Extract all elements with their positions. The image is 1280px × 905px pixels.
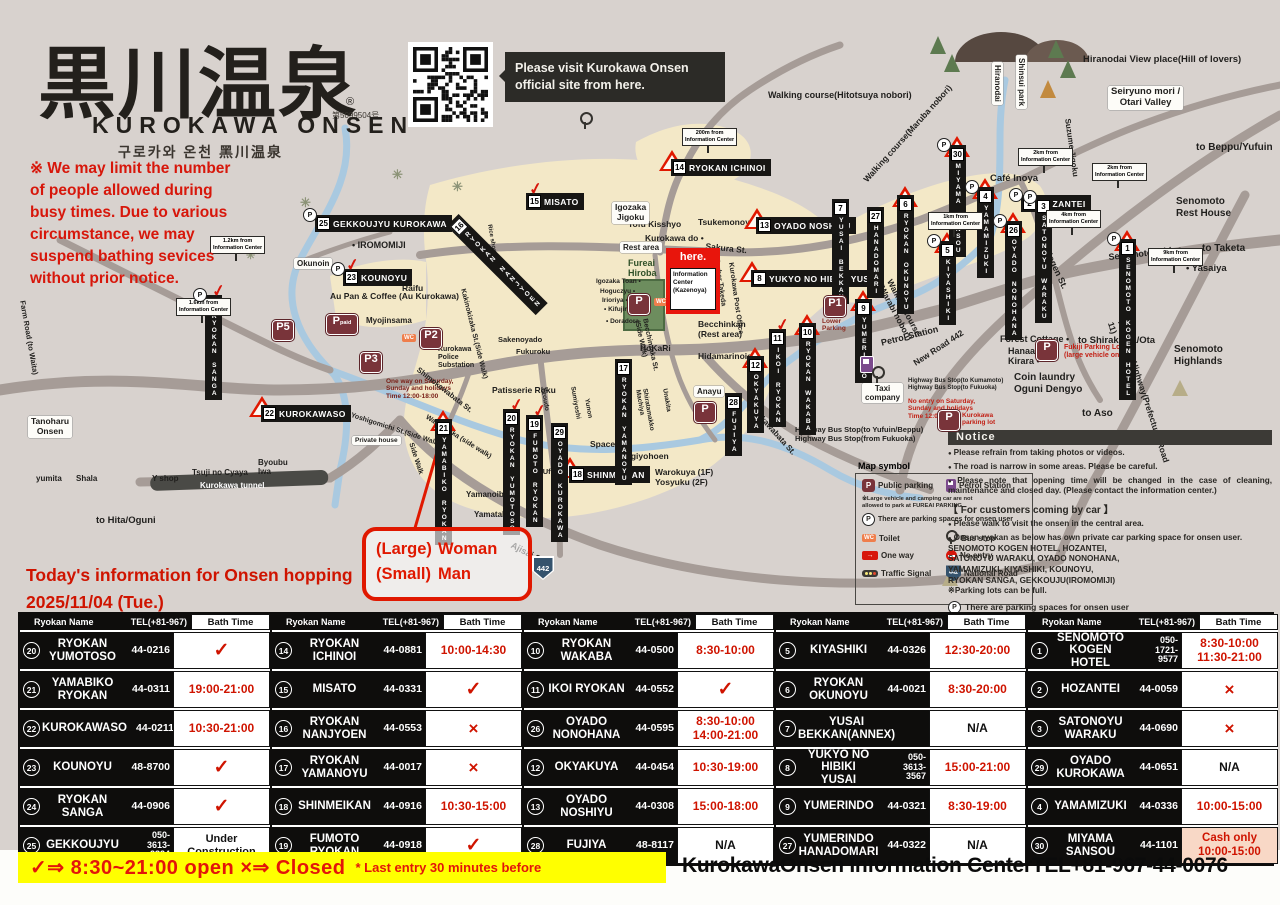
ryokan-name: RYOKAN NANJYOEN [294, 716, 375, 741]
table-row-ryokan-2: 2HOZANTEI44-0059× [1028, 669, 1278, 708]
map-label: Myojinsama [366, 316, 412, 325]
column-header-bath-time: Bath Time [695, 614, 774, 630]
ryokan-tel: 44-0021 [879, 684, 929, 695]
map-sign-29: 29OYADO KUROKAWA [552, 424, 567, 541]
onsen-parking-circle-icon: P [937, 138, 951, 152]
information-center-here-marker: here. Information Center (Kazenoya) [666, 248, 720, 314]
ryokan-name: YUKYO NO HIBIKI YUSAI [798, 749, 879, 787]
map-sign-17: 17RYOKAN YAMANOYU [616, 360, 631, 484]
public-parking-icon: P [862, 479, 875, 492]
map-sign-5: 5KIYASHIKI [940, 242, 955, 324]
ryokan-name: KIYASHIKI [798, 644, 879, 657]
map-label: Rest area [620, 242, 662, 253]
bath-time-cell: 19:00-21:00 [173, 671, 270, 708]
woman-label: Woman [438, 540, 497, 558]
ryokan-name: YAMABIKO RYOKAN [42, 677, 123, 702]
parking-icon-p5: P5 [272, 320, 294, 341]
map-sign-8: 8YUKYO NO HIBIKI YUSAI [752, 271, 883, 286]
map-label: Coin laundry Oguni Dengyo [1014, 372, 1082, 395]
bath-time-cell: 10:00-15:00 [1181, 788, 1278, 825]
map-label: ✳ [452, 180, 463, 195]
column-header-bath-time: Bath Time [1199, 614, 1278, 630]
map-sign-14: 14RYOKAN ICHINOI [672, 160, 770, 175]
one-way-icon: → [862, 551, 878, 560]
map-label: ✳ [392, 168, 403, 183]
legend-bar: ✓⇒ 8:30~21:00 open ×⇒ Closed * Last entr… [18, 852, 666, 883]
map-sign-22: 22KUROKAWASO [262, 406, 350, 421]
map-symbol-title: Map symbol [858, 461, 910, 471]
onsen-parking-circle-icon: P [927, 234, 941, 248]
table-row-ryokan-11: 11IKOI RYOKAN44-0552✓ [524, 669, 774, 708]
distance-signpost: 1km from Information Center [928, 212, 983, 230]
table-group: Ryokan NameTEL(+81-967)Bath Time20RYOKAN… [20, 614, 272, 864]
ryokan-name: OYADO NOSHIYU [546, 794, 627, 819]
onsen-parking-icon: P [862, 513, 875, 526]
map-label: yumita [36, 474, 62, 483]
table-row-ryokan-1: 1SENOMOTO KOGEN HOTEL050- 1721- 95778:30… [1028, 630, 1278, 669]
column-header-name-tel: Ryokan NameTEL(+81-967) [776, 614, 947, 630]
onsen-parking-circle-icon: P [1107, 232, 1121, 246]
table-row-ryokan-12: 12OKYAKUYA44-045410:30-19:00 [524, 747, 774, 786]
map-sign-21: 21YAMABIKO RYOKAN [436, 420, 451, 544]
logo-registered-mark: ® [346, 96, 354, 108]
table-row-ryokan-17: 17RYOKAN YAMANOYU44-0017× [272, 747, 522, 786]
bath-time-cell: 10:00-14:30 [425, 632, 522, 669]
ryokan-number-badge: 27 [779, 837, 796, 854]
map-label: Tanoharu Onsen [28, 416, 72, 438]
map-label: Kurokawa tunnel [200, 481, 264, 490]
ryokan-tel: 44-0916 [375, 801, 425, 812]
ryokan-tel: 44-0311 [123, 684, 173, 695]
bath-time-cell: 8:30-10:00 [677, 632, 774, 669]
map-sign-7: 7YUSAI BEKKAN [833, 200, 848, 303]
onsen-parking-circle-icon: P [1023, 190, 1037, 204]
onsen-hopping-table: Ryokan NameTEL(+81-967)Bath Time20RYOKAN… [18, 612, 1274, 866]
ryokan-number-badge: 11 [527, 681, 544, 698]
bath-time-cell: 12:30-20:00 [929, 632, 1026, 669]
ryokan-name: SHINMEIKAN [294, 800, 375, 813]
table-row-ryokan-10: 10RYOKAN WAKABA44-05008:30-10:00 [524, 630, 774, 669]
traffic-signal-icon [862, 570, 878, 577]
parking-icon-p3: P3 [360, 352, 382, 373]
table-group: Ryokan NameTEL(+81-967)Bath Time14RYOKAN… [272, 614, 524, 864]
map-sign-4: 4YAMAMIZUKI [978, 188, 993, 277]
table-row-ryokan-3: 3SATONOYU WARAKU44-0690× [1028, 708, 1278, 747]
table-row-ryokan-6: 6RYOKAN OKUNOYU44-00218:30-20:00 [776, 669, 1026, 708]
map-label: • IROMOMIJI [352, 240, 406, 250]
bathing-restriction-note: ※ We may limit the number of people allo… [30, 158, 310, 290]
ryokan-tel: 44-0322 [879, 840, 929, 851]
notice-box: Notice Please refrain from taking photos… [948, 430, 1272, 631]
parking-icon-ppaid: Ppaid [326, 314, 358, 335]
map-sign-10: 10RYOKAN WAKABA [800, 324, 815, 434]
distance-signpost: 4km from Information Center [1046, 210, 1101, 228]
parking-icon-p: P [1036, 340, 1058, 361]
onsen-parking-circle-icon: P [993, 214, 1007, 228]
ryokan-name: OKYAKUYA [546, 761, 627, 774]
ryokan-number-badge: 13 [527, 798, 544, 815]
map-sign-28: 28FUJIYA [726, 394, 741, 455]
ryokan-number-badge: 24 [23, 798, 40, 815]
table-group: Ryokan NameTEL(+81-967)Bath Time10RYOKAN… [524, 614, 776, 864]
ryokan-tel: 44-0326 [879, 645, 929, 656]
map-label: Taxi company [862, 383, 903, 403]
onsen-parking-circle-icon: P [965, 180, 979, 194]
parking-icon-p: P [628, 294, 650, 315]
map-sign-19: 19FUMOTO RYOKAN [527, 416, 542, 526]
map-label: Au Pan & Coffee (Au Kurokawa) [330, 292, 459, 302]
table-row-ryokan-20: 20RYOKAN YUMOTOSO44-0216✓ [20, 630, 270, 669]
bath-time-cell: 15:00-21:00 [929, 749, 1026, 786]
ryokan-number-badge: 26 [527, 720, 544, 737]
here-label: here. [666, 248, 720, 267]
table-row-ryokan-5: 5KIYASHIKI44-032612:30-20:00 [776, 630, 1026, 669]
ryokan-name: KOUNOYU [42, 761, 123, 774]
bath-time-cell: ✓ [173, 632, 270, 669]
notice-bullet: Onsen ryokan as below has own private ca… [948, 533, 1272, 597]
ryokan-tel: 44-0331 [375, 684, 425, 695]
table-row-ryokan-14: 14RYOKAN ICHINOI44-088110:00-14:30 [272, 630, 522, 669]
map-label: to Aso [1082, 408, 1113, 420]
ryokan-tel: 44-1101 [1131, 840, 1181, 851]
information-center-contact: KurokawaOnsen Information CenterTEL+81-9… [682, 854, 1228, 878]
table-row-ryokan-13: 13OYADO NOSHIYU44-030815:00-18:00 [524, 786, 774, 825]
poster-root: 黒川温泉 ® 第5099504号 KUROKAWA ONSEN 구로카와 온천 … [0, 0, 1280, 905]
notice-title: Notice [948, 430, 1272, 445]
ryokan-tel: 44-0906 [123, 801, 173, 812]
legend-last-entry: * Last entry 30 minutes before [356, 860, 542, 875]
ryokan-name: HOZANTEI [1050, 683, 1131, 696]
ryokan-number-badge: 1 [1031, 642, 1048, 659]
map-label: Hiranodai View place(Hill of lovers) [1083, 55, 1241, 66]
map-sign-20: 20RYOKAN YUMOTOSO [504, 410, 519, 534]
bus-stop-icon [580, 112, 593, 125]
map-label: Irioriya • [602, 297, 628, 304]
notice-car-header: 【 For customers coming by car 】 [948, 501, 1272, 516]
ryokan-tel: 050- 1721- 9577 [1131, 636, 1181, 664]
ryokan-name: RYOKAN SANGA [42, 794, 123, 819]
map-label: to Taketa [1202, 243, 1245, 255]
man-label: Man [438, 565, 471, 583]
map-label: Fureai Hiroba [628, 258, 657, 279]
table-row-ryokan-24: 24RYOKAN SANGA44-0906✓ [20, 786, 270, 825]
ryokan-tel: 44-0059 [1131, 684, 1181, 695]
toilet-icon: WC [862, 534, 876, 542]
map-label: Y shop [152, 474, 179, 483]
notice-bullet: The road is narrow in some areas. Please… [948, 462, 1272, 473]
parking-icon-p2: P2 [420, 328, 442, 349]
ryokan-tel: 44-0690 [1131, 723, 1181, 734]
bath-time-cell: 15:00-18:00 [677, 788, 774, 825]
table-row-ryokan-22: 22KUROKAWASO44-021110:30-21:00 [20, 708, 270, 747]
bath-size-legend: (Large)Woman (Small)Man [362, 527, 532, 601]
bath-time-cell: N/A [1181, 749, 1278, 786]
bath-time-cell: 10:30-19:00 [677, 749, 774, 786]
map-sign-26: 26OYADO NONOHANA [1006, 222, 1021, 339]
table-row-ryokan-4: 4YAMAMIZUKI44-033610:00-15:00 [1028, 786, 1278, 825]
bath-time-cell: ✓ [425, 671, 522, 708]
ryokan-tel: 48-8700 [123, 762, 173, 773]
ryokan-tel: 48-8117 [627, 840, 677, 851]
ryokan-name: MISATO [294, 683, 375, 696]
ryokan-tel: 44-0500 [627, 645, 677, 656]
map-label: Kurokawa Police Substation [438, 346, 474, 370]
parking-icon-p1: P1 [824, 296, 846, 317]
ryokan-tel: 44-0552 [627, 684, 677, 695]
map-label: Private house [352, 436, 401, 445]
map-label: Shinsui park [1016, 55, 1027, 109]
table-row-ryokan-23: 23KOUNOYU48-8700✓ [20, 747, 270, 786]
ryokan-number-badge: 30 [1031, 837, 1048, 854]
table-row-ryokan-26: 26OYADO NONOHANA44-05958:30-10:00 14:00-… [524, 708, 774, 747]
ryokan-tel: 050- 3613- 3567 [879, 753, 929, 781]
column-header-bath-time: Bath Time [191, 614, 270, 630]
bath-time-cell: × [1181, 710, 1278, 747]
toilet-label: Toilet [879, 534, 900, 543]
map-label: Highway Bus Stop(to Kumamoto) Highway Bu… [908, 378, 1003, 392]
map-label: Kurokawa parking lot [962, 412, 995, 427]
ryokan-number-badge: 9 [779, 798, 796, 815]
large-label: (Large) [376, 537, 438, 562]
ryokan-name: KUROKAWASO [42, 722, 127, 735]
ryokan-number-badge: 12 [527, 759, 544, 776]
bath-time-cell: 8:30-10:00 14:00-21:00 [677, 710, 774, 747]
bath-time-cell: × [1181, 671, 1278, 708]
map-sign-1: 1SENOMOTO KOGEN HOTEL [1120, 240, 1135, 399]
map-label: • Doradora [606, 318, 639, 325]
traffic-signal-label: Traffic Signal [881, 569, 931, 578]
map-label: Walking course(Hitotsuya nobori) [768, 90, 912, 100]
map-label: Sakenoyado [498, 336, 542, 345]
map-sign-30: 30MIYAMA SANSOU [950, 146, 965, 256]
notice-bullet: Please walk to visit the onsen in the ce… [948, 519, 1272, 530]
map-label: Igozaka Jigoku [612, 202, 649, 224]
map-label: Shala [76, 474, 97, 483]
bath-time-cell: × [425, 749, 522, 786]
map-label: Senomoto Rest House [1176, 196, 1231, 219]
table-row-ryokan-9: 9YUMERINDO44-03218:30-19:00 [776, 786, 1026, 825]
one-way-label: One way [881, 551, 914, 560]
bus-stop-icon [872, 366, 885, 379]
legend-open-closed: ✓⇒ 8:30~21:00 open ×⇒ Closed [30, 855, 346, 880]
ryokan-number-badge: 29 [1031, 759, 1048, 776]
ryokan-number-badge: 8 [779, 759, 796, 776]
ryokan-number-badge: 15 [275, 681, 292, 698]
ryokan-number-badge: 10 [527, 642, 544, 659]
ryokan-name: FUJIYA [546, 839, 627, 852]
ryokan-name: RYOKAN YUMOTOSO [42, 638, 123, 663]
information-center-label: Information Center (Kazenoya) [670, 268, 716, 310]
distance-signpost: 200m from Information Center [682, 128, 737, 146]
logo-english: KUROKAWA ONSEN [92, 112, 414, 139]
ryokan-number-badge: 4 [1031, 798, 1048, 815]
ryokan-number-badge: 7 [779, 720, 796, 737]
ryokan-tel: 44-0595 [627, 723, 677, 734]
distance-signpost: 9km from Information Center [1148, 248, 1203, 266]
table-row-ryokan-15: 15MISATO44-0331✓ [272, 669, 522, 708]
map-label: • Kifujin [604, 306, 628, 313]
ryokan-number-badge: 16 [275, 720, 292, 737]
ryokan-name: SENOMOTO KOGEN HOTEL [1050, 632, 1131, 670]
ryokan-name: RYOKAN OKUNOYU [798, 677, 879, 702]
bath-time-cell: N/A [929, 710, 1026, 747]
onsen-parking-circle-icon: P [331, 262, 345, 276]
map-label: Hidamarinoie [698, 352, 752, 362]
onsen-parking-circle-icon: P [193, 288, 207, 302]
bath-time-cell: 8:30-10:00 11:30-21:00 [1181, 632, 1278, 669]
map-label: Patisserie Roku [492, 386, 556, 396]
ryokan-tel: 44-0651 [1131, 762, 1181, 773]
map-label: Igozaka Toan • [596, 278, 641, 285]
map-label: Anayu [694, 386, 724, 397]
ryokan-name: YUSAI BEKKAN(ANNEX) [798, 716, 895, 741]
ryokan-name: YUMERINDO [798, 800, 879, 813]
ryokan-tel: 44-0308 [627, 801, 677, 812]
map-label: Byoubu Iwa [258, 458, 288, 476]
map-label: Tsuji no Cyaya [192, 468, 248, 477]
ryokan-name: OYADO NONOHANA [546, 716, 627, 741]
map-sign-6: 6RYOKAN OKUNOYU [898, 196, 913, 313]
table-group: Ryokan NameTEL(+81-967)Bath Time5KIYASHI… [776, 614, 1028, 864]
parking-icon-p: P [694, 402, 716, 423]
bath-time-cell: ✓ [173, 749, 270, 786]
ryokan-number-badge: 21 [23, 681, 40, 698]
bath-time-cell: × [425, 710, 522, 747]
bath-time-cell: ✓ [173, 788, 270, 825]
map-label: to Beppu/Yufuin [1196, 142, 1273, 154]
column-header-name-tel: Ryokan NameTEL(+81-967) [1028, 614, 1199, 630]
ryokan-tel: 44-0881 [375, 645, 425, 656]
bath-time-cell: 8:30-20:00 [929, 671, 1026, 708]
qr-code [408, 42, 493, 127]
ryokan-number-badge: 20 [23, 642, 40, 659]
map-label: Fukuroku [516, 348, 550, 357]
map-label: Senomoto Highlands [1174, 344, 1223, 367]
todays-information: Today's information for Onsen hopping 20… [26, 562, 353, 616]
qr-speech-bubble: Please visit Kurokawa Onsen official sit… [505, 52, 725, 102]
ryokan-number-badge: 3 [1031, 720, 1048, 737]
ryokan-name: RYOKAN WAKABA [546, 638, 627, 663]
ryokan-tel: 44-0918 [375, 840, 425, 851]
table-group: Ryokan NameTEL(+81-967)Bath Time1SENOMOT… [1028, 614, 1278, 864]
ryokan-tel: 44-0321 [879, 801, 929, 812]
table-row-ryokan-21: 21YAMABIKO RYOKAN44-031119:00-21:00 [20, 669, 270, 708]
map-label: Warokuya (1F) Yosyuku (2F) [655, 468, 713, 488]
ryokan-number-badge: 22 [23, 720, 40, 737]
distance-signpost: 2km from Information Center [1018, 148, 1073, 166]
column-header-name-tel: Ryokan NameTEL(+81-967) [272, 614, 443, 630]
ryokan-tel: 44-0017 [375, 762, 425, 773]
ryokan-number-badge: 18 [275, 798, 292, 815]
ryokan-number-badge: 5 [779, 642, 796, 659]
ryokan-name: RYOKAN YAMANOYU [294, 755, 375, 780]
ryokan-number-badge: 2 [1031, 681, 1048, 698]
map-sign-12: 12OKYAKUYA [748, 357, 763, 432]
ryokan-name: YAMAMIZUKI [1050, 800, 1131, 813]
ryokan-name: OYADO KUROKAWA [1050, 755, 1131, 780]
map-label: Seiryuno mori / Otari Valley [1108, 86, 1183, 110]
column-header-bath-time: Bath Time [443, 614, 522, 630]
table-row-ryokan-8: 8YUKYO NO HIBIKI YUSAI050- 3613- 356715:… [776, 747, 1026, 786]
column-header-name-tel: Ryokan NameTEL(+81-967) [20, 614, 191, 630]
table-row-ryokan-16: 16RYOKAN NANJYOEN44-0553× [272, 708, 522, 747]
bath-time-cell: 10:30-15:00 [425, 788, 522, 825]
ryokan-tel: 44-0336 [1131, 801, 1181, 812]
ryokan-name: RYOKAN ICHINOI [294, 638, 375, 663]
bath-time-cell: 10:30-21:00 [173, 710, 270, 747]
ryokan-tel: 44-0454 [627, 762, 677, 773]
small-label: (Small) [376, 562, 438, 587]
map-sign-11: 11IKOI RYOKAN [770, 330, 785, 426]
bath-time-cell: 8:30-19:00 [929, 788, 1026, 825]
table-row-ryokan-29: 29OYADO KUROKAWA44-0651N/A [1028, 747, 1278, 786]
map-sign-25: 25GEKKOUJYU KUROKAWA [316, 216, 451, 231]
ryokan-number-badge: 23 [23, 759, 40, 776]
ryokan-number-badge: 14 [275, 642, 292, 659]
distance-signpost: 2km from Information Center [1092, 163, 1147, 181]
table-row-ryokan-7: 7YUSAI BEKKAN(ANNEX)N/A [776, 708, 1026, 747]
ryokan-tel: 44-0553 [375, 723, 425, 734]
column-header-bath-time: Bath Time [947, 614, 1026, 630]
map-label: Café Inoya [990, 174, 1038, 185]
map-label: Hiranodai [992, 62, 1003, 105]
map-label: Lower Parking [822, 318, 846, 333]
map-label: to Hita/Oguni [96, 516, 156, 527]
ryokan-number-badge: 6 [779, 681, 796, 698]
notice-bullet: Please refrain from taking photos or vid… [948, 448, 1272, 459]
public-parking-label: Public parking [878, 481, 933, 490]
ryokan-name: GEKKOUJYU [42, 839, 123, 852]
map-label: Raifu [402, 284, 423, 294]
map-sign-18: 18SHINMEIKAN [570, 467, 649, 482]
parking-icon-p: P [938, 410, 960, 431]
column-header-name-tel: Ryokan NameTEL(+81-967) [524, 614, 695, 630]
ryokan-tel: 44-0216 [123, 645, 173, 656]
table-row-ryokan-18: 18SHINMEIKAN44-091610:30-15:00 [272, 786, 522, 825]
bath-time-cell: ✓ [677, 671, 774, 708]
notice-bullet: Please note that opening time will be ch… [948, 476, 1272, 497]
ryokan-name: IKOI RYOKAN [546, 683, 627, 696]
ryokan-tel: 44-0211 [127, 723, 177, 734]
onsen-parking-circle-icon: P [1009, 188, 1023, 202]
ryokan-name: SATONOYU WARAKU [1050, 716, 1131, 741]
toilet-icon: WC [402, 334, 416, 342]
ryokan-number-badge: 17 [275, 759, 292, 776]
map-sign-27: 27HANADOMARI [868, 208, 883, 297]
